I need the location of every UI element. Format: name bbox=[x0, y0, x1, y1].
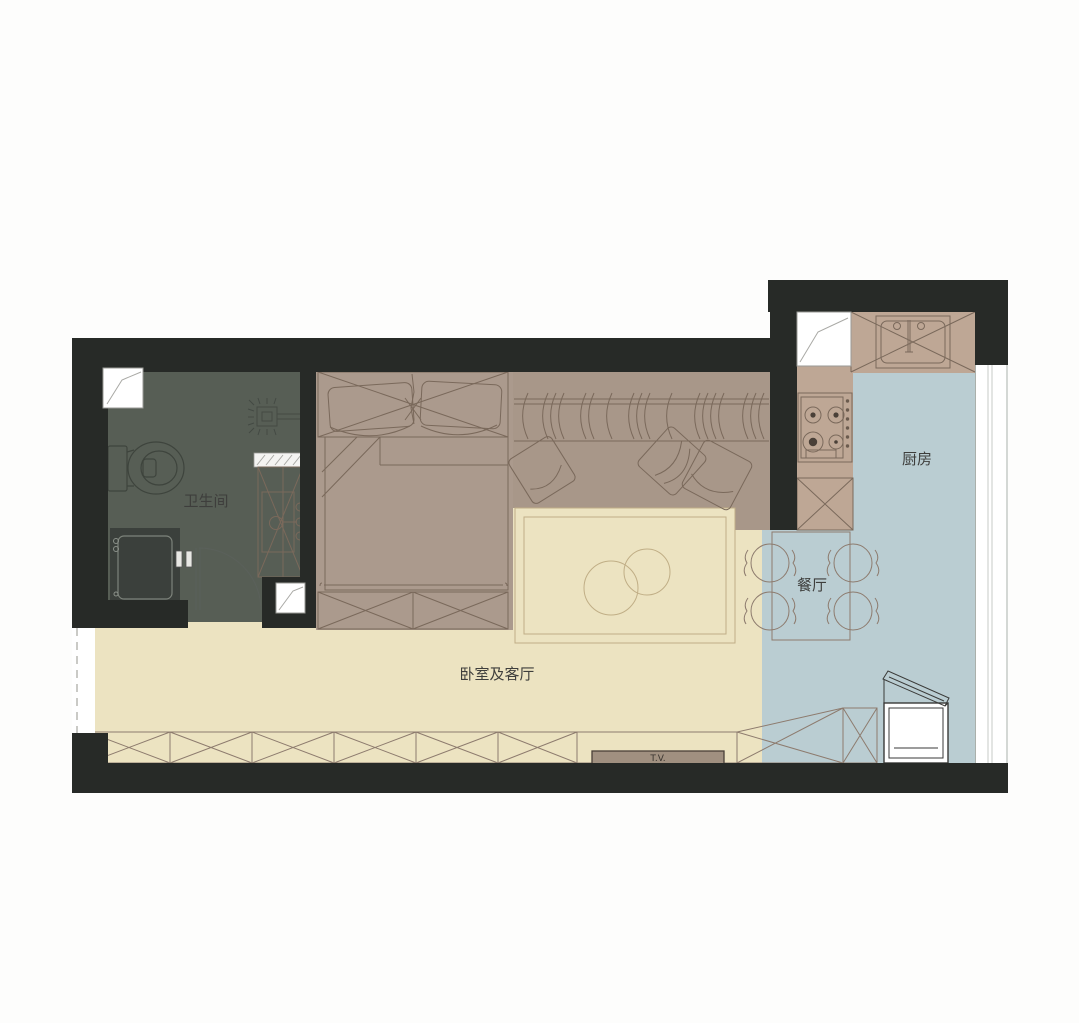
wall-bottom bbox=[72, 763, 1008, 793]
wardrobe-sofa-area bbox=[513, 372, 770, 508]
wall-bathroom-right bbox=[300, 372, 316, 600]
right-window-wall bbox=[975, 365, 1008, 763]
kitchen-label: 厨房 bbox=[902, 450, 932, 468]
floor-plan-page: T.V. bbox=[0, 0, 1079, 1023]
shower bbox=[110, 528, 180, 607]
shaft-bathroom-top bbox=[103, 368, 143, 408]
wall-kitchen-right-corner bbox=[975, 312, 1008, 365]
left-window-opening bbox=[72, 628, 95, 733]
shaft-bathroom-bottom bbox=[276, 583, 305, 613]
wall-bathroom-bottom-stub bbox=[108, 600, 188, 628]
tv: T.V. bbox=[592, 751, 724, 764]
wardrobe-area-corner bbox=[735, 508, 770, 530]
dining-label: 餐厅 bbox=[797, 576, 827, 594]
bathroom-label: 卫生间 bbox=[183, 492, 228, 510]
wall-top-main bbox=[72, 338, 797, 372]
floor-plan-canvas: T.V. bbox=[0, 0, 1079, 1023]
wall-kitchen-divider bbox=[770, 312, 797, 530]
tv-label: T.V. bbox=[649, 754, 665, 764]
wall-top-kitchen bbox=[768, 280, 1008, 312]
bedroom-living-label: 卧室及客厅 bbox=[459, 665, 534, 683]
kitchen-entry-shaft bbox=[797, 312, 851, 366]
kitchen-floor-dining-extension bbox=[762, 530, 853, 763]
